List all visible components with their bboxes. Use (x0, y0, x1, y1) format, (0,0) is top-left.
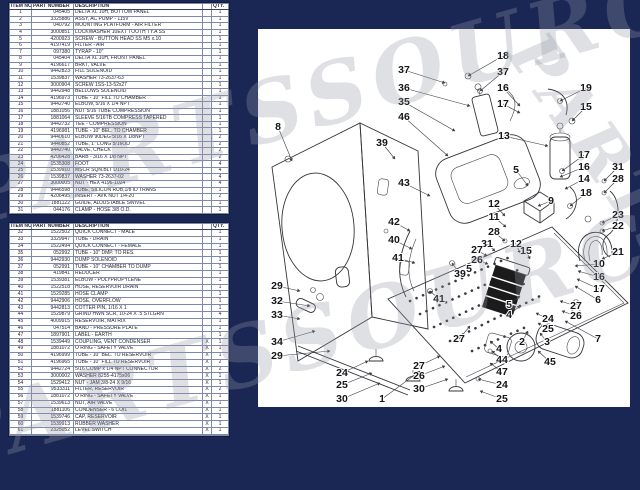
qty-cell: 2 (212, 359, 229, 366)
description-cell: QUICK CONNECT - FEMALE (74, 243, 203, 250)
diagram-paper: 1837373616351719154613839543171631142818… (258, 29, 630, 407)
description-cell: TUBE, SILICON RUB,1/8 ID TRANS (74, 187, 203, 194)
item-no-cell: 45 (10, 318, 32, 325)
kit-flag-cell (203, 181, 212, 188)
part-number-cell: 1529412 (32, 380, 74, 387)
qty-cell: 1 (212, 16, 229, 23)
table-row: 54200923SCREW - BUTTON HEAD SS M5 x.101 (10, 36, 229, 43)
table-row: 161881056NUT 5/16 TUBE COMPRESSION1 (10, 108, 229, 115)
callout-label: 26 (413, 370, 425, 382)
part-number-cell: 9442813 (32, 305, 74, 312)
item-no-cell: 21 (10, 141, 32, 148)
kit-flag-cell (203, 230, 212, 237)
description-cell: TUBE - 10" BEL. TO CHAMBER (74, 128, 203, 135)
description-cell: GRIND HWN SCR, 10-24 X .5 STLGRN (74, 311, 203, 318)
callout-label: 15 (520, 245, 532, 257)
item-no-cell: 24 (10, 161, 32, 168)
description-cell: NUT 5/16 TUBE COMPRESSION (74, 108, 203, 115)
table-row: 333329947TUBE - DRAIN1 (10, 236, 229, 243)
part-number-cell: 1522502 (32, 230, 74, 237)
callout-label: 45 (544, 356, 556, 368)
description-cell: DUMP SOLENOID (74, 257, 203, 264)
callout-label: 12 (488, 198, 500, 210)
qty-cell: 4 (212, 311, 229, 318)
description-cell: MOUNTING PLATFORM - AIR FILTER (74, 23, 203, 30)
qty-cell: 2 (212, 366, 229, 373)
kit-flag-cell: X (203, 428, 212, 435)
overflow-hose (400, 231, 410, 297)
table-row: 219440852TUBE, 1" LONG 5/16OD2 (10, 141, 229, 148)
callout-label: 3 (544, 336, 550, 348)
callout-label: 40 (388, 234, 400, 246)
part-number-cell: 1539449 (32, 339, 74, 346)
qty-cell: 1 (212, 23, 229, 30)
description-cell: FOOT (74, 161, 203, 168)
qty-cell: 1 (212, 75, 229, 82)
callout-label: 31 (612, 161, 624, 173)
table-2-body: 321522502QUICK CONNECT - MALE1333329947T… (10, 230, 229, 436)
description-cell: HOSE CLAMP (74, 291, 203, 298)
callout-label: 18 (497, 50, 509, 62)
kit-flag-cell (203, 49, 212, 56)
kit-flag-cell: X (203, 346, 212, 353)
item-no-cell: 14 (10, 95, 32, 102)
item-no-cell: 37 (10, 264, 32, 271)
description-cell: INSERT - AVK NUT 1/4-20 (74, 194, 203, 201)
part-number-cell: 3325886 (32, 16, 74, 23)
kit-flag-cell (203, 243, 212, 250)
table-row: 31044176CLAMP - HOSE 3/8 O.D.1 (10, 207, 229, 214)
item-no-cell: 59 (10, 414, 32, 421)
callout-label: 2 (519, 336, 525, 348)
description-cell: RESERVOIR, MATRIX (74, 318, 203, 325)
item-no-cell: 6 (10, 42, 32, 49)
kit-flag-cell (203, 154, 212, 161)
qty-cell: 1 (212, 187, 229, 194)
callout-label: 7 (595, 333, 601, 345)
parts-table-bottom: ITEM NO.PART NUMBERDESCRIPTIONQTY. 32152… (8, 222, 230, 437)
description-cell: FILTER, RESERVOIR (74, 387, 203, 394)
part-number-cell: 3000002 (32, 373, 74, 380)
qty-cell: 1 (212, 428, 229, 435)
part-number-cell: 9446598 (32, 187, 74, 194)
qty-cell: 4 (212, 181, 229, 188)
qty-cell: 1 (212, 207, 229, 214)
callout-label: 16 (593, 271, 605, 283)
qty-cell: 1 (212, 200, 229, 207)
kit-flag-cell: X (203, 380, 212, 387)
kit-flag-cell (203, 332, 212, 339)
item-no-cell: 16 (10, 108, 32, 115)
kit-flag-cell (203, 121, 212, 128)
part-number-cell: 045404 (32, 56, 74, 63)
table-row: 411529285HOSE CLAMP1 (10, 291, 229, 298)
callout-label: 15 (580, 101, 592, 113)
kit-flag-cell (203, 29, 212, 36)
table-row: 341522494QUICK CONNECT - FEMALE1 (10, 243, 229, 250)
item-no-cell: 60 (10, 421, 32, 428)
part-number-cell: 1881122 (32, 200, 74, 207)
callout-label: 6 (595, 294, 601, 306)
table-row: 454009915RESERVOIR, MATRIX1 (10, 318, 229, 325)
table-row: 64197419FILTER - AIR1 (10, 42, 229, 49)
callout-label: 43 (398, 177, 410, 189)
item-no-cell: 49 (10, 346, 32, 353)
qty-cell: 1 (212, 284, 229, 291)
description-cell: CONDENSER - 6 COIL (74, 407, 203, 414)
table-row: 1045405DELTA XL 10H, BOTTOM PANEL1 (10, 10, 229, 17)
description-cell: COUPLING, VENT CONDENSER (74, 339, 203, 346)
item-no-cell: 44 (10, 311, 32, 318)
kit-flag-cell (203, 257, 212, 264)
table-row: 8045404DELTA XL 10H, FRONT PANEL1 (10, 56, 229, 63)
kit-flag-cell: X (203, 414, 212, 421)
item-no-cell: 48 (10, 339, 32, 346)
item-no-cell: 23 (10, 154, 32, 161)
callout-label: 13 (498, 130, 510, 142)
kit-flag-cell (203, 69, 212, 76)
item-no-cell: 54 (10, 380, 32, 387)
qty-cell: 2 (212, 148, 229, 155)
item-no-cell: 19 (10, 128, 32, 135)
qty-cell: 4 (212, 161, 229, 168)
qty-cell: 2 (212, 387, 229, 394)
qty-cell: 2 (212, 141, 229, 148)
table-row: 43000851LOCKWASHER 10EXT TOOTH TY.A SS1 (10, 29, 229, 36)
kit-flag-cell (203, 36, 212, 43)
callout-label: 25 (542, 323, 554, 335)
kit-flag-cell (203, 291, 212, 298)
description-cell: BRKT, VALVE (74, 62, 203, 69)
part-number-cell: 4196981 (32, 128, 74, 135)
callout-label: 17 (497, 98, 509, 110)
part-number-cell: 4196617 (32, 62, 74, 69)
part-number-cell: 047514 (32, 325, 74, 332)
item-no-cell: 36 (10, 257, 32, 264)
kit-flag-cell (203, 82, 212, 89)
item-no-cell: 20 (10, 134, 32, 141)
item-no-cell: 29 (10, 194, 32, 201)
description-cell: BAND - PRESSURE PLATE (74, 325, 203, 332)
part-number-cell: 3000851 (32, 29, 74, 36)
qty-cell: 1 (212, 346, 229, 353)
item-no-cell: 53 (10, 373, 32, 380)
kit-flag-cell: X (203, 339, 212, 346)
description-cell: ELBOW, 5/16 X 1/4 NPT (74, 102, 203, 109)
part-number-cell: 4196973 (32, 95, 74, 102)
part-number-cell: 4206428 (32, 154, 74, 161)
part-number-cell: 9442930 (32, 257, 74, 264)
callout-label: 36 (398, 82, 410, 94)
table-row: 504196999TUBE - 10" BEL. TO RESERVOIRX1 (10, 352, 229, 359)
kit-flag-cell (203, 207, 212, 214)
callout-label: 22 (612, 220, 624, 232)
description-cell: LABEL - EARTH (74, 332, 203, 339)
description-cell: FILL SOLENOID (74, 69, 203, 76)
kit-flag-cell (203, 95, 212, 102)
kit-flag-cell (203, 148, 212, 155)
table-row: 189442732TEE - COMPRESSION1 (10, 121, 229, 128)
qty-cell: 1 (212, 236, 229, 243)
part-number-cell: 1539837 (32, 75, 74, 82)
table-row: 38419841REDUCER1 (10, 270, 229, 277)
table-row: 571539613NUT, AIR VALVEX1 (10, 400, 229, 407)
part-number-cell: 045405 (32, 10, 74, 17)
table-row: 234206428BARB - 3/16 X 1/8 NPT2 (10, 154, 229, 161)
table-row: 369442930DUMP SOLENOID1 (10, 257, 229, 264)
item-no-cell: 43 (10, 305, 32, 312)
description-cell: DELTA XL 10H, BOTTOM PANEL (74, 10, 203, 17)
table-row: 5294427245/16 COMP x 1/4 NPT CONNECTORX2 (10, 366, 229, 373)
description-cell: COTTER PIN, 1/16 X 1 (74, 305, 203, 312)
long-tube (296, 346, 410, 395)
part-number-cell: 052992 (32, 250, 74, 257)
qty-cell: 2 (212, 154, 229, 161)
callout-label: 30 (336, 393, 348, 405)
description-cell: FILTER - AIR (74, 42, 203, 49)
description-cell: ELBOW 90DEG 5/16 X 1/8NPT (74, 134, 203, 141)
leader-line (404, 70, 445, 83)
description-cell: SLEEVE 5/16TB COMPRESS TAPERED (74, 115, 203, 122)
qty-cell: 1 (212, 305, 229, 312)
part-number-cell: 9442732 (32, 121, 74, 128)
item-no-cell: 41 (10, 291, 32, 298)
description-cell: NUT - HEX 4196-1024 (74, 181, 203, 188)
table-row: 46047514BAND - PRESSURE PLATE1 (10, 325, 229, 332)
item-no-cell: 47 (10, 332, 32, 339)
part-number-cell (32, 434, 74, 435)
qty-cell: 1 (212, 121, 229, 128)
kit-flag-cell (203, 62, 212, 69)
callout-label: 39 (376, 137, 388, 149)
table-row: 612325052LEVEL SWITCHX1 (10, 428, 229, 435)
callout-label: 34 (271, 336, 283, 348)
callout-label: 41 (392, 252, 404, 264)
item-no-cell: 13 (10, 88, 32, 95)
callout-label: 30 (413, 383, 425, 395)
callout-label: 14 (578, 173, 590, 185)
kit-flag-cell: X (203, 366, 212, 373)
qty-cell: 1 (212, 10, 229, 17)
description-cell: HOSE, RESERVOIR DRAIN (74, 284, 203, 291)
description-cell: HOSE, OVERFLOW (74, 298, 203, 305)
table-row: 391539381ELBOW - POLYPROPYLENE1 (10, 277, 229, 284)
description-cell: O RING - SAFETY VALVE (74, 393, 203, 400)
item-no-cell: 9 (10, 62, 32, 69)
item-no-cell: 2 (10, 16, 32, 23)
part-number-cell: 4206495 (32, 194, 74, 201)
part-number-cell: 4196965 (32, 359, 74, 366)
part-number-cell: 1529879 (32, 311, 74, 318)
part-number-cell: 1539746 (32, 414, 74, 421)
item-no-cell: 28 (10, 187, 32, 194)
description-cell: O RING - SAFETY VALVE (74, 346, 203, 353)
item-no-cell: 40 (10, 284, 32, 291)
table-row: 491881072O RING - SAFETY VALVEX1 (10, 346, 229, 353)
item-no-cell: 27 (10, 181, 32, 188)
callout-label: 26 (471, 254, 483, 266)
kit-flag-cell (203, 277, 212, 284)
kit-flag-cell (203, 167, 212, 174)
kit-flag-cell: X (203, 373, 212, 380)
description-cell: ASSY, AC PUMP - 115V (74, 16, 203, 23)
description-cell: SCREW 1SS-13-52x27 (74, 82, 203, 89)
table-row: 541529412NUT - JAM 3/8-24 X 9/16X1 (10, 380, 229, 387)
kit-flag-cell (203, 174, 212, 181)
table-row: 471897901LABEL - EARTH1 (10, 332, 229, 339)
part-number-cell: 9442948 (32, 88, 74, 95)
item-no-cell: 38 (10, 270, 32, 277)
table-row: 229442740VALVE, CHECK2 (10, 148, 229, 155)
qty-cell: 1 (212, 270, 229, 277)
qty-cell: 1 (212, 352, 229, 359)
table-row: 3040792MOUNTING PLATFORM - AIR FILTER1 (10, 23, 229, 30)
callout-label: 17 (593, 283, 605, 295)
condenser-part (579, 216, 613, 261)
description-cell: QUICK CONNECT - MALE (74, 230, 203, 237)
table-row: 23325886ASSY, AC PUMP - 115V1 (10, 16, 229, 23)
part-number-cell: 4200923 (32, 36, 74, 43)
qty-cell: 1 (212, 42, 229, 49)
kit-flag-cell (203, 284, 212, 291)
kit-flag-cell (203, 200, 212, 207)
callout-label: 27 (453, 333, 465, 345)
item-no-cell: 18 (10, 121, 32, 128)
part-number-cell: 1539381 (32, 277, 74, 284)
table-row: 111539837WASHER 73-2637-631 (10, 75, 229, 82)
part-number-cell: 1881072 (32, 393, 74, 400)
part-number-cell: 4009915 (32, 318, 74, 325)
kit-flag-cell (203, 10, 212, 17)
description-cell: TYRAP - 10" (74, 49, 203, 56)
item-no-cell: 34 (10, 243, 32, 250)
part-number-cell: 097380 (32, 49, 74, 56)
callout-label: 24 (336, 367, 348, 379)
qty-cell: 1 (212, 230, 229, 237)
part-number-cell: 1881056 (32, 108, 74, 115)
description-cell: REDUCER (74, 270, 203, 277)
item-no-cell: 22 (10, 148, 32, 155)
item-no-cell (10, 434, 32, 435)
kit-flag-cell (203, 16, 212, 23)
table-row: 581881106CONDENSER - 6 COILX1 (10, 407, 229, 414)
description-cell: 5/16 COMP x 1/4 NPT CONNECTOR (74, 366, 203, 373)
description-cell: RUBBER WASHER (74, 421, 203, 428)
table-row: 401522518HOSE, RESERVOIR DRAIN1 (10, 284, 229, 291)
kit-flag-cell (203, 318, 212, 325)
kit-flag-cell (203, 56, 212, 63)
kit-flag-cell (203, 128, 212, 135)
part-number-cell: 9440852 (32, 141, 74, 148)
callout-label: 46 (398, 111, 410, 123)
kit-flag-cell (203, 264, 212, 271)
qty-cell (212, 434, 229, 435)
table-row: 139442948BELLOWS SOLENOID1 (10, 88, 229, 95)
item-no-cell: 33 (10, 236, 32, 243)
rear-panel-part (272, 123, 372, 361)
table-row: 209440610ELBOW 90DEG 5/16 X 1/8NPT2 (10, 134, 229, 141)
callout-label: 47 (496, 366, 508, 378)
callout-label: 19 (580, 82, 592, 94)
description-cell: NUT - JAM 3/8-24 X 9/16 (74, 380, 203, 387)
item-no-cell: 32 (10, 230, 32, 237)
qty-cell: 1 (212, 264, 229, 271)
column-header: PART NUMBER (32, 4, 74, 10)
part-number-cell: 1539613 (32, 400, 74, 407)
part-number-cell: 044176 (32, 207, 74, 214)
callout-label: 5 (513, 164, 519, 176)
table-row: 591539746CAP, RESERVOIRX1 (10, 414, 229, 421)
description-cell: NUT, AIR VALVE (74, 400, 203, 407)
qty-cell: 1 (212, 95, 229, 102)
qty-cell: 1 (212, 400, 229, 407)
item-no-cell: 26 (10, 174, 32, 181)
kit-flag-cell (203, 88, 212, 95)
table-row (10, 434, 229, 435)
callout-label: 17 (578, 149, 590, 161)
item-no-cell: 5 (10, 36, 32, 43)
table-row: 159442740ELBOW, 5/16 X 1/4 NPT1 (10, 102, 229, 109)
part-number-cell: 9533311 (32, 387, 74, 394)
item-no-cell: 1 (10, 10, 32, 17)
table-row: 533000002WASHER 8255-4175x06X1 (10, 373, 229, 380)
table-row: 123000904SCREW 1SS-13-52x271 (10, 82, 229, 89)
callout-label: 18 (580, 187, 592, 199)
part-number-cell: 9442906 (32, 298, 74, 305)
part-number-cell: 040792 (32, 23, 74, 30)
column-header: PART NUMBER (32, 224, 74, 230)
qty-cell: 1 (212, 393, 229, 400)
table-row: 561881072O RING - SAFETY VALVEX1 (10, 393, 229, 400)
item-no-cell: 10 (10, 69, 32, 76)
item-no-cell: 50 (10, 352, 32, 359)
item-no-cell: 55 (10, 387, 32, 394)
column-header: ITEM NO. (10, 4, 32, 10)
description-cell: WASHER 73-2637-63 (74, 75, 203, 82)
kit-flag-cell (203, 134, 212, 141)
kit-flag-cell (203, 42, 212, 49)
item-no-cell: 30 (10, 200, 32, 207)
table-row: 35052992TUBE - 10" DMP. TO RES.1 (10, 250, 229, 257)
qty-cell: 1 (212, 115, 229, 122)
kit-flag-cell (203, 102, 212, 109)
item-no-cell: 42 (10, 298, 32, 305)
item-no-cell: 46 (10, 325, 32, 332)
callout-label: 16 (497, 82, 509, 94)
description-cell: VALVE, CHECK (74, 148, 203, 155)
callout-layer: 1837373616351719154613839543171631142818… (271, 50, 624, 405)
table-row: 273000005NUT - HEX 4196-10244 (10, 181, 229, 188)
item-no-cell: 25 (10, 167, 32, 174)
item-no-cell: 58 (10, 407, 32, 414)
kit-flag-cell (203, 270, 212, 277)
table-row: 37052991TUBE - 10" CHAMBER TO DUMP1 (10, 264, 229, 271)
kit-flag-cell: X (203, 407, 212, 414)
description-cell (74, 434, 203, 435)
table-row: 109442823FILL SOLENOID1 (10, 69, 229, 76)
leader-line (404, 102, 455, 131)
qty-cell: 1 (212, 29, 229, 36)
kit-flag-cell (203, 115, 212, 122)
kit-flag-cell (203, 325, 212, 332)
qty-cell: 1 (212, 128, 229, 135)
parts-table-2: ITEM NO.PART NUMBERDESCRIPTIONQTY. 32152… (9, 223, 229, 436)
callout-label: 4 (506, 309, 512, 321)
kit-flag-cell (203, 75, 212, 82)
table-row: 7097380TYRAP - 10"1 (10, 49, 229, 56)
callout-label: 28 (488, 226, 500, 238)
qty-cell: 1 (212, 243, 229, 250)
